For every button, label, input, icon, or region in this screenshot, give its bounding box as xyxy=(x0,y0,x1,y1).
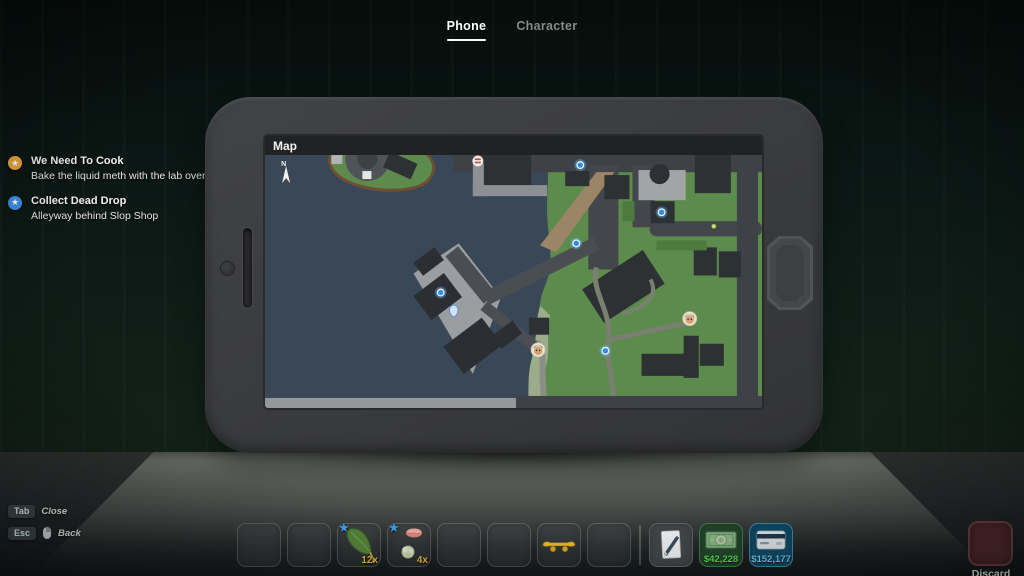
phone-home-button[interactable] xyxy=(767,236,813,310)
discard-label: Discard xyxy=(968,568,1014,576)
skateboard-item-icon xyxy=(540,536,578,554)
blue-objective-marker-icon xyxy=(656,206,668,218)
phone-speaker xyxy=(243,228,252,308)
notepad-pen-icon xyxy=(657,529,685,561)
game-screen: Phone Character ★ We Need To Cook Bake t… xyxy=(0,0,1024,576)
top-tab-bar: Phone Character xyxy=(0,19,1024,41)
quest-title: Collect Dead Drop xyxy=(31,195,233,207)
hotbar-slot-1[interactable] xyxy=(237,523,281,567)
quest-description: Bake the liquid meth with the lab oven xyxy=(31,170,231,184)
cash-balance: $42,228 xyxy=(700,554,742,565)
hotbar-slot-5[interactable] xyxy=(437,523,481,567)
blue-objective-marker-icon xyxy=(435,287,447,299)
item-quantity: 12x xyxy=(361,555,378,566)
quest-star-icon: ★ xyxy=(8,156,22,170)
map-app-header: Map xyxy=(265,136,762,155)
hotbar-slot-2[interactable] xyxy=(287,523,331,567)
map-canvas[interactable]: N xyxy=(265,155,762,408)
favorite-star-icon: ★ xyxy=(388,520,400,536)
credit-card-icon xyxy=(756,530,786,550)
map-app-title: Map xyxy=(273,139,297,153)
phone-camera xyxy=(221,262,234,275)
cash-bill-icon xyxy=(705,531,737,549)
hotbar: ★ 12x ★ 4x xyxy=(237,523,793,567)
svg-text:N: N xyxy=(281,161,286,168)
quest-description: Alleyway behind Slop Shop xyxy=(31,210,231,224)
bank-card-slot[interactable]: $152,177 xyxy=(749,523,793,567)
item-quantity: 4x xyxy=(417,555,428,566)
discard-drop-zone[interactable] xyxy=(968,521,1013,566)
npc-face-marker-icon xyxy=(683,312,697,326)
tab-keycap: Tab xyxy=(8,505,35,518)
blue-objective-marker-icon xyxy=(570,237,582,249)
hotbar-slot-7[interactable] xyxy=(537,523,581,567)
hotbar-slot-6[interactable] xyxy=(487,523,531,567)
quest-title: We Need To Cook xyxy=(31,155,233,167)
quest-entry: ★ Collect Dead Drop Alleyway behind Slop… xyxy=(8,195,233,224)
cash-slot[interactable]: $42,228 xyxy=(699,523,743,567)
map-viewport[interactable]: N xyxy=(265,155,762,408)
journal-slot[interactable] xyxy=(649,523,693,567)
favorite-star-icon: ★ xyxy=(338,520,350,536)
quest-entry: ★ We Need To Cook Bake the liquid meth w… xyxy=(8,155,233,184)
hint-close: Tab Close xyxy=(8,503,81,519)
small-dot-marker-icon xyxy=(712,224,716,228)
tab-phone[interactable]: Phone xyxy=(447,19,487,41)
discard-area: Discard xyxy=(968,521,1014,576)
blue-objective-marker-icon xyxy=(574,159,586,171)
hotbar-separator xyxy=(639,525,641,565)
tab-character[interactable]: Character xyxy=(516,19,577,41)
shop-marker-icon xyxy=(473,156,483,166)
hint-back: Esc Back xyxy=(8,525,81,541)
hotkey-hints: Tab Close Esc Back xyxy=(8,503,81,547)
phone-screen: Map xyxy=(265,136,762,408)
blue-objective-marker-icon xyxy=(599,345,611,357)
quest-log: ★ We Need To Cook Bake the liquid meth w… xyxy=(8,155,233,234)
quest-star-icon: ★ xyxy=(8,196,22,210)
esc-keycap: Esc xyxy=(8,527,36,540)
hotbar-slot-8[interactable] xyxy=(587,523,631,567)
hotbar-slot-4[interactable]: ★ 4x xyxy=(387,523,431,567)
phone-device: Map xyxy=(205,97,823,453)
hotbar-slot-3[interactable]: ★ 12x xyxy=(337,523,381,567)
npc-face-marker-icon xyxy=(531,343,545,357)
mouse-icon xyxy=(42,526,52,540)
card-balance: $152,177 xyxy=(750,554,792,565)
